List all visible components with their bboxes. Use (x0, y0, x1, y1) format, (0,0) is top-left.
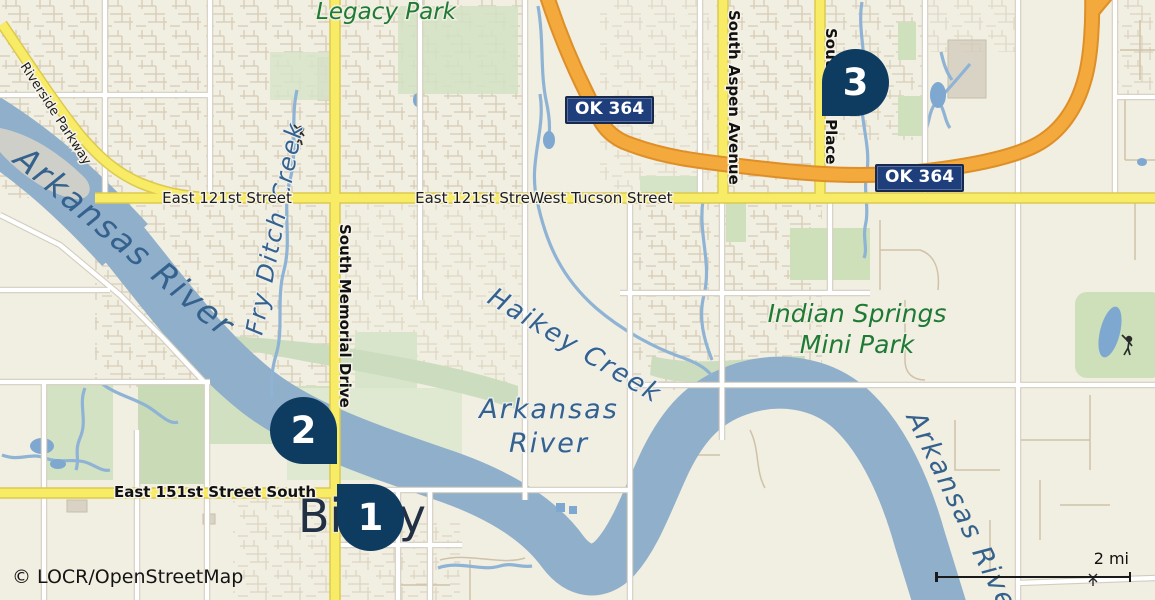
scale-bar: 2 mi (935, 549, 1131, 582)
indian-springs-label-1: Indian Springs (768, 299, 947, 328)
map-pin-3-number: 3 (843, 61, 869, 104)
legacy-park-label: Legacy Park (316, 0, 458, 25)
street-label-151st: East 151st Street South (114, 483, 316, 501)
indian-springs-label-2: Mini Park (800, 330, 916, 359)
map-pin-2-number: 2 (291, 409, 317, 452)
street-label-121st-center: East 121st Street (415, 189, 545, 207)
map-pin-1-number: 1 (358, 496, 384, 539)
street-label-west-tucson: West Tucson Street (529, 189, 672, 207)
route-shield-ok364-west: OK 364 (565, 96, 654, 124)
river-label-center-2: River (509, 428, 589, 459)
route-shield-ok364-east: OK 364 (875, 164, 964, 192)
map-attribution: © LOCR/OpenStreetMap (12, 566, 243, 588)
map-pin-2[interactable]: 2 (270, 397, 337, 464)
river-label-center-1: Arkansas (477, 394, 619, 425)
street-label-121st-west: East 121st Street (162, 189, 292, 207)
scale-bar-label: 2 mi (935, 549, 1129, 568)
street-label-aspen: South Aspen Avenue (725, 10, 743, 185)
map-pin-1[interactable]: 1 (337, 484, 404, 551)
scale-bar-line (935, 572, 1131, 582)
map-canvas[interactable]: Bixby Arkansas River Arkansas River Arka… (0, 0, 1155, 600)
map-pin-3[interactable]: 3 (822, 49, 889, 116)
street-label-memorial: South Memorial Drive (336, 224, 354, 408)
map-base: Bixby Arkansas River Arkansas River Arka… (0, 0, 1155, 600)
